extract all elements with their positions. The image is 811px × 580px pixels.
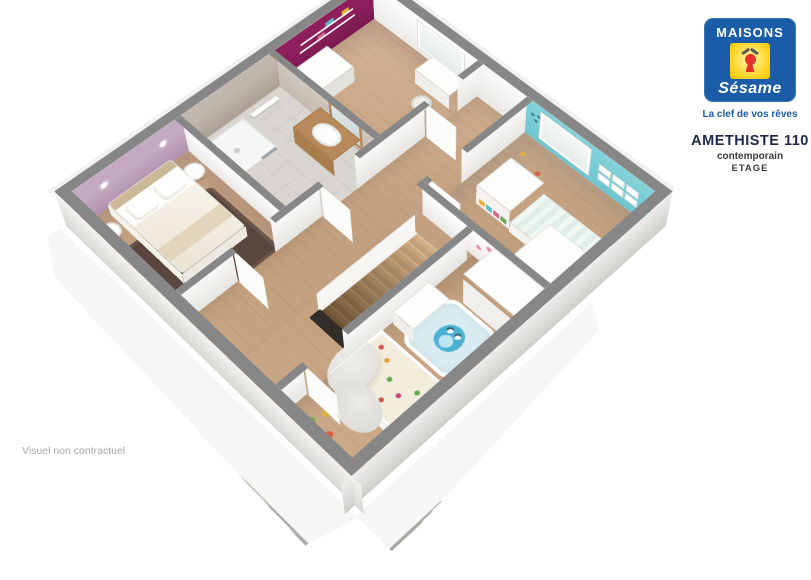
- disclaimer-text: Visuel non contractuel: [22, 445, 125, 457]
- floorplan-scene: [166, 26, 566, 426]
- shower-drain: [232, 147, 242, 154]
- logo-yellow-box: [730, 43, 770, 79]
- floor-toys: [519, 151, 527, 157]
- brand-tagline: La clef de vos rêves: [688, 109, 811, 120]
- owl-figure: [428, 319, 471, 356]
- storage-bin: [493, 210, 499, 219]
- floor-level: ETAGE: [688, 163, 811, 174]
- logo-brand-bottom: Sésame: [718, 80, 782, 98]
- brand-column: MAISONS Sésame La clef de vos rêves AMET…: [688, 18, 811, 174]
- storage-bin: [486, 204, 492, 213]
- maisons-sesame-logo: MAISONS Sésame: [704, 18, 796, 102]
- logo-brand-top: MAISONS: [716, 25, 784, 40]
- storage-bin: [500, 216, 506, 225]
- floorplan-etage: [83, 19, 649, 488]
- door-leaf: [426, 103, 457, 161]
- owl-eye: [453, 332, 463, 341]
- model-style: contemporain: [688, 151, 811, 162]
- model-name: AMETHISTE 110: [688, 133, 811, 149]
- owl-eye: [445, 326, 455, 335]
- storage-bin: [479, 198, 485, 207]
